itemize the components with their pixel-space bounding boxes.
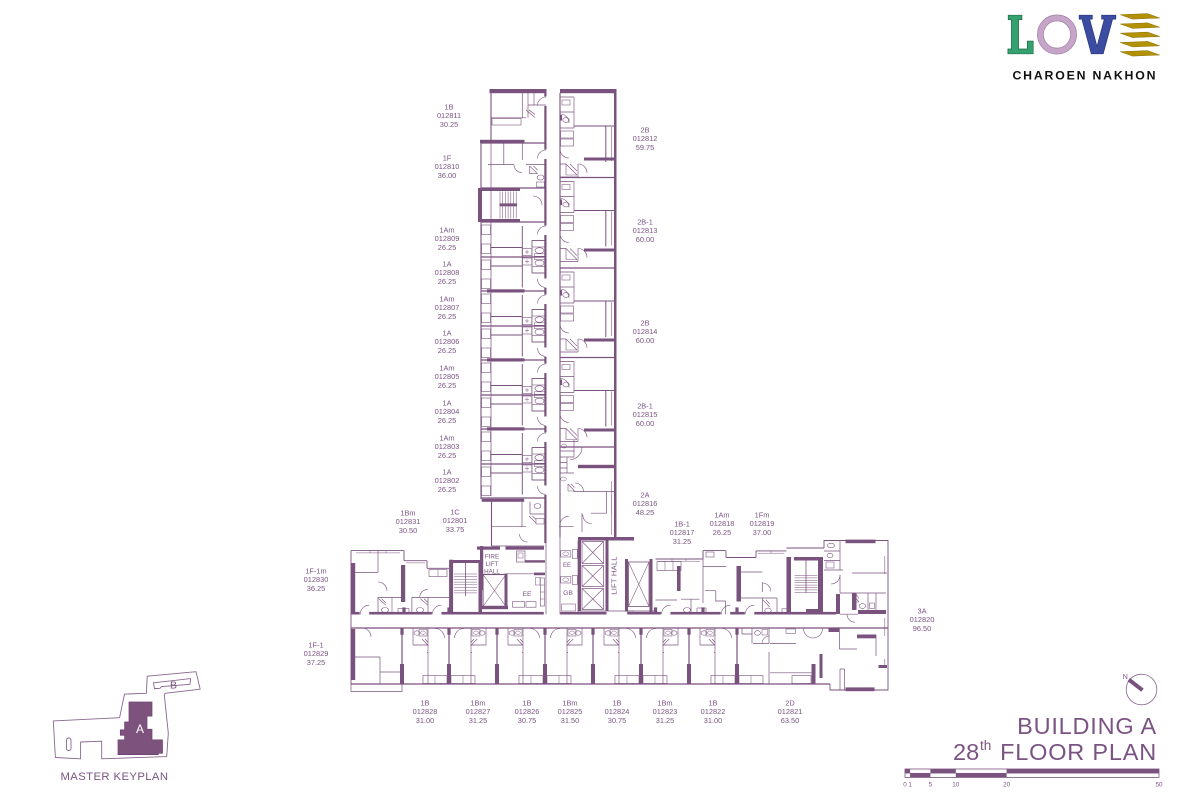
svg-text:5: 5 xyxy=(929,782,933,789)
svg-text:MASTER KEYPLAN: MASTER KEYPLAN xyxy=(61,771,169,783)
svg-text:th: th xyxy=(980,738,991,753)
svg-text:EE: EE xyxy=(522,591,532,598)
svg-text:A: A xyxy=(136,722,144,736)
svg-text:1F-1m01283036.25: 1F-1m01283036.25 xyxy=(304,566,329,593)
svg-text:EE: EE xyxy=(563,563,571,569)
svg-text:20: 20 xyxy=(1003,782,1011,789)
svg-text:FLOOR PLAN: FLOOR PLAN xyxy=(1000,739,1157,765)
svg-text:0: 0 xyxy=(903,782,907,789)
svg-text:GB: GB xyxy=(563,590,573,597)
svg-text:10: 10 xyxy=(952,782,960,789)
svg-text:FIRELIFTHALL: FIRELIFTHALL xyxy=(484,554,500,576)
svg-text:28: 28 xyxy=(953,739,979,765)
svg-text:1: 1 xyxy=(908,782,912,789)
svg-text:50: 50 xyxy=(1155,782,1163,789)
svg-text:N: N xyxy=(1123,674,1128,681)
svg-text:CHAROEN NAKHON: CHAROEN NAKHON xyxy=(1013,69,1158,83)
svg-text:B: B xyxy=(170,680,177,692)
svg-text:LIFT HALL: LIFT HALL xyxy=(610,556,619,594)
svg-text:BUILDING A: BUILDING A xyxy=(1017,713,1157,739)
